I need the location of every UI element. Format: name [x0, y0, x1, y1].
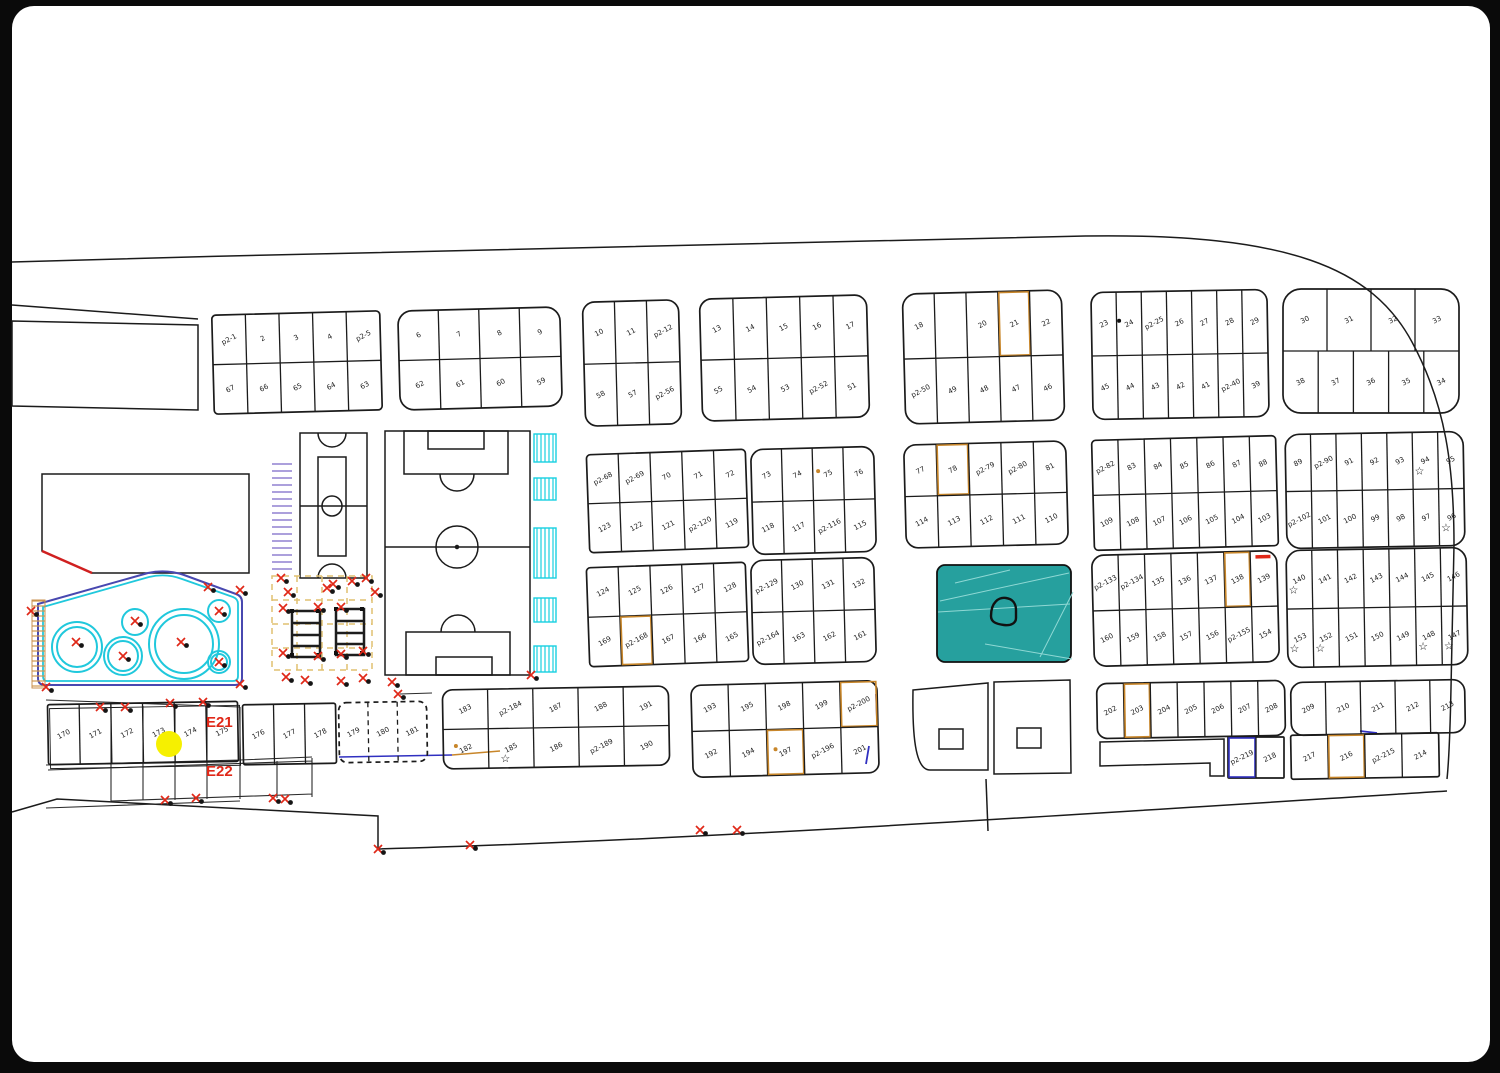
- paper: [12, 6, 1490, 1062]
- star-icon: ☆: [1414, 465, 1424, 478]
- site-plan-canvas: p2-1234p2-567666564636789626160591011p2-…: [0, 0, 1500, 1073]
- star-icon: ☆: [1290, 642, 1300, 655]
- star-icon: ☆: [1315, 642, 1325, 655]
- site-plan-viewer: p2-1234p2-567666564636789626160591011p2-…: [0, 0, 1500, 1073]
- star-icon: ☆: [1288, 584, 1298, 597]
- yellow-marker: [156, 731, 182, 757]
- star-icon: ☆: [1441, 521, 1451, 534]
- e21-label: E21: [206, 714, 233, 731]
- star-icon: ☆: [1444, 639, 1454, 652]
- star-icon: ☆: [1418, 640, 1428, 653]
- star-icon: ☆: [500, 752, 510, 765]
- e22-label: E22: [206, 763, 233, 780]
